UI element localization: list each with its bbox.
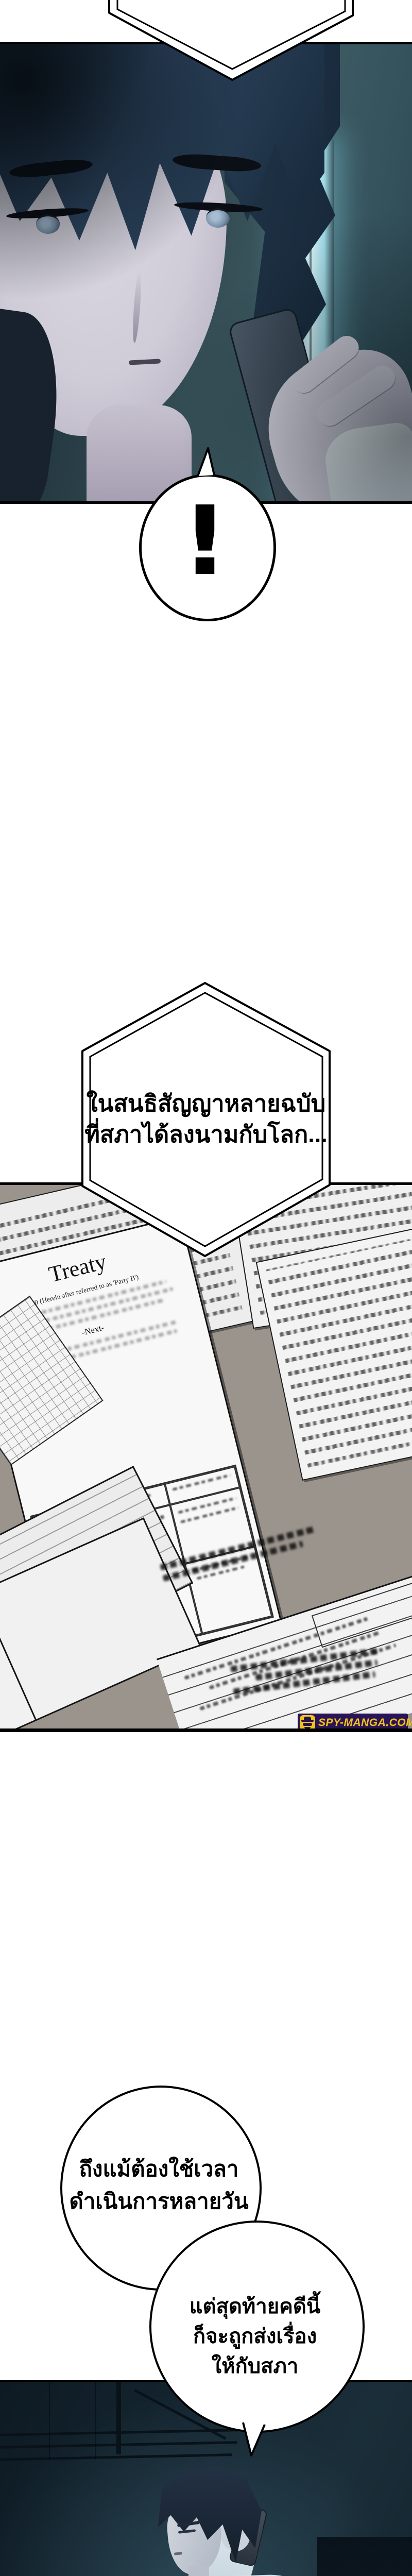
wall-seam <box>49 2382 50 2460</box>
spy-icon <box>300 1715 315 1731</box>
exclamation-text: ! <box>131 485 279 597</box>
bubble-line: ให้กับสภา <box>149 2351 360 2381</box>
exclamation-bubble-tail <box>195 446 217 478</box>
watermark-site: SPY-MANGA.COM <box>318 1717 412 1729</box>
speech-bubble-top-cropped <box>0 0 412 98</box>
case-outcome-text: แต่สุดท้ายคดีนี้ ก็จะถูกส่งเรื่อง ให้กับ… <box>149 2292 360 2381</box>
case-outcome-bubble-tail <box>241 2421 268 2459</box>
bubble-line: ดำเนินการหลายวัน <box>60 2185 257 2217</box>
bubble-line: ก็จะถูกส่งเรื่อง <box>149 2321 360 2351</box>
panel-vignette <box>0 44 412 504</box>
rack-post <box>116 2382 121 2454</box>
paper-right <box>256 1226 412 1481</box>
sheet-divider <box>0 1592 37 1720</box>
blurred-text <box>266 1238 412 1468</box>
panel-phone-closeup <box>0 42 412 504</box>
panel-treaty-documents: Treaty 000 (Herein after referred to as … <box>0 1182 412 1732</box>
ceiling-rack-bar <box>0 2453 232 2461</box>
wall-seam <box>95 2382 96 2460</box>
narration-line-1: ในสนธิสัญญาหลายฉบับ <box>77 1088 335 1119</box>
bubble-line: แต่สุดท้ายคดีนี้ <box>149 2292 360 2321</box>
bubble-line: ถึงแม้ต้องใช้เวลา <box>60 2153 257 2185</box>
watermark-badge: SPY-MANGA.COM <box>298 1714 408 1732</box>
process-time-text: ถึงแม้ต้องใช้เวลา ดำเนินการหลายวัน <box>60 2153 257 2217</box>
webtoon-page: ! ในสนธิสัญญาหลายฉบับ ที่สภาได้ลงนามกับโ… <box>0 0 412 2576</box>
furniture-shelf <box>317 2537 412 2576</box>
narration-line-2: ที่สภาได้ลงนามกับโลก... <box>77 1119 335 1150</box>
narration-treaty-text: ในสนธิสัญญาหลายฉบับ ที่สภาได้ลงนามกับโลก… <box>77 1088 335 1150</box>
character2-neck <box>188 2566 209 2576</box>
blurred-bold-line <box>233 1671 376 1695</box>
